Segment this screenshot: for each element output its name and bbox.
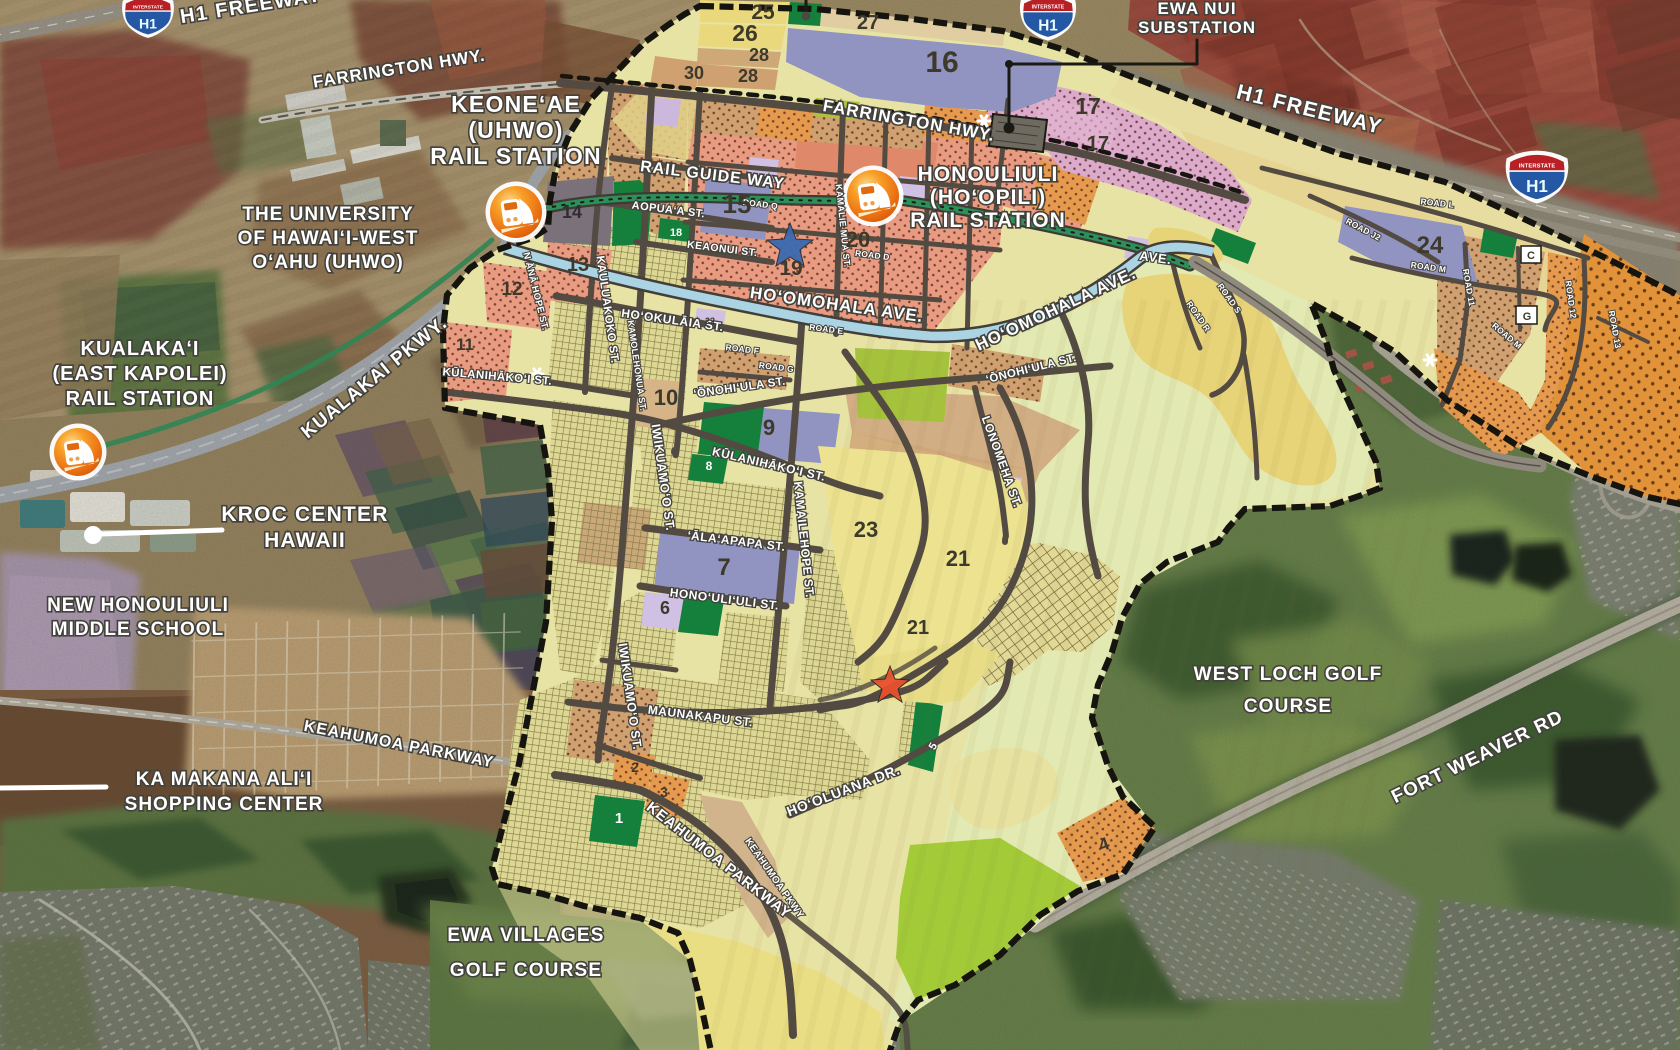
svg-text:21: 21 xyxy=(946,546,970,571)
svg-text:SHOPPING CENTER: SHOPPING CENTER xyxy=(125,794,324,815)
svg-text:HAWAII: HAWAII xyxy=(264,529,346,552)
svg-text:13: 13 xyxy=(567,254,589,276)
svg-text:17: 17 xyxy=(1075,93,1101,119)
svg-text:G: G xyxy=(1523,311,1532,323)
svg-text:COURSE: COURSE xyxy=(1244,696,1333,717)
svg-text:THE UNIVERSITY: THE UNIVERSITY xyxy=(242,204,413,225)
svg-text:KEONEʻAE: KEONEʻAE xyxy=(451,91,581,117)
svg-text:28: 28 xyxy=(738,66,758,86)
svg-text:SUBSTATION: SUBSTATION xyxy=(1138,18,1256,37)
svg-text:(UHWO): (UHWO) xyxy=(468,117,563,143)
svg-text:20: 20 xyxy=(846,227,870,252)
svg-text:21: 21 xyxy=(907,617,929,639)
svg-text:EWA NUI: EWA NUI xyxy=(1157,0,1236,18)
svg-text:H1: H1 xyxy=(1038,17,1058,34)
svg-text:KROC CENTER: KROC CENTER xyxy=(221,503,388,526)
svg-text:12: 12 xyxy=(501,279,522,300)
svg-text:10: 10 xyxy=(654,385,678,410)
svg-text:22: 22 xyxy=(705,316,715,326)
svg-text:HONOULIULI: HONOULIULI xyxy=(918,163,1059,186)
svg-text:26: 26 xyxy=(732,20,758,46)
svg-text:H1: H1 xyxy=(139,15,157,31)
svg-text:MIDDLE SCHOOL: MIDDLE SCHOOL xyxy=(52,619,224,640)
svg-text:RAIL STATION: RAIL STATION xyxy=(66,388,215,410)
svg-text:INTERSTATE: INTERSTATE xyxy=(1032,5,1065,11)
svg-text:18: 18 xyxy=(670,227,682,239)
svg-text:7: 7 xyxy=(717,554,730,581)
svg-text:9: 9 xyxy=(763,415,775,440)
svg-text:6: 6 xyxy=(660,598,670,618)
svg-text:GOLF COURSE: GOLF COURSE xyxy=(450,960,603,981)
svg-text:INTERSTATE: INTERSTATE xyxy=(1519,164,1556,170)
svg-text:EWA VILLAGES: EWA VILLAGES xyxy=(447,925,604,946)
svg-text:11: 11 xyxy=(456,335,474,354)
svg-text:15: 15 xyxy=(723,189,752,219)
svg-text:30: 30 xyxy=(684,63,704,83)
svg-text:27: 27 xyxy=(857,12,879,34)
svg-text:RAIL STATION: RAIL STATION xyxy=(910,209,1066,232)
svg-text:3: 3 xyxy=(660,784,668,800)
svg-text:(HOʻOPILI): (HOʻOPILI) xyxy=(930,186,1046,209)
svg-text:19: 19 xyxy=(779,257,802,280)
svg-text:24: 24 xyxy=(1417,232,1444,259)
svg-text:RAIL STATION: RAIL STATION xyxy=(430,143,602,169)
svg-text:KUALAKAʻI: KUALAKAʻI xyxy=(81,338,200,360)
svg-text:KA MAKANA ALIʻI: KA MAKANA ALIʻI xyxy=(136,769,312,790)
svg-text:17: 17 xyxy=(1087,133,1109,155)
svg-text:NEW HONOULIULI: NEW HONOULIULI xyxy=(47,595,229,616)
svg-text:14: 14 xyxy=(562,202,582,222)
svg-text:8: 8 xyxy=(706,459,713,473)
svg-text:2: 2 xyxy=(631,759,639,775)
svg-text:WEST LOCH GOLF: WEST LOCH GOLF xyxy=(1194,664,1383,685)
svg-text:OF HAWAIʻI-WEST: OF HAWAIʻI-WEST xyxy=(238,228,419,249)
svg-text:INTERSTATE: INTERSTATE xyxy=(133,4,163,10)
svg-text:H1: H1 xyxy=(1526,177,1548,196)
svg-text:C: C xyxy=(1527,250,1535,262)
svg-text:(EAST KAPOLEI): (EAST KAPOLEI) xyxy=(52,363,227,385)
svg-text:16: 16 xyxy=(925,46,958,79)
svg-text:1: 1 xyxy=(615,810,623,827)
svg-text:23: 23 xyxy=(854,517,878,542)
svg-text:OʻAHU (UHWO): OʻAHU (UHWO) xyxy=(252,252,403,273)
svg-text:28: 28 xyxy=(749,45,769,65)
